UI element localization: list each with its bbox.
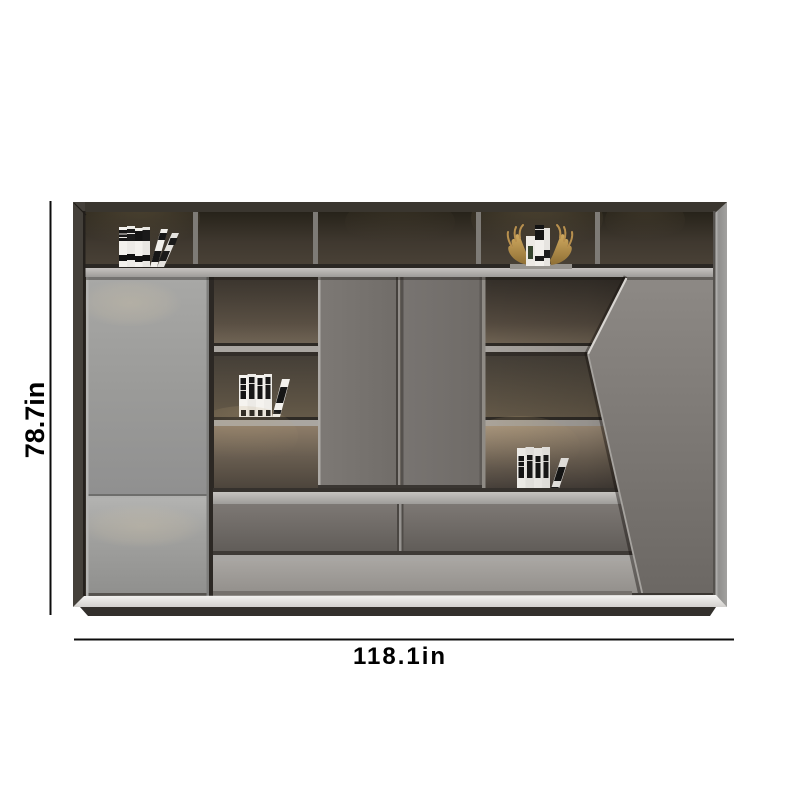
svg-text:118.1in: 118.1in [353, 643, 447, 670]
svg-text:78.7in: 78.7in [20, 382, 50, 459]
